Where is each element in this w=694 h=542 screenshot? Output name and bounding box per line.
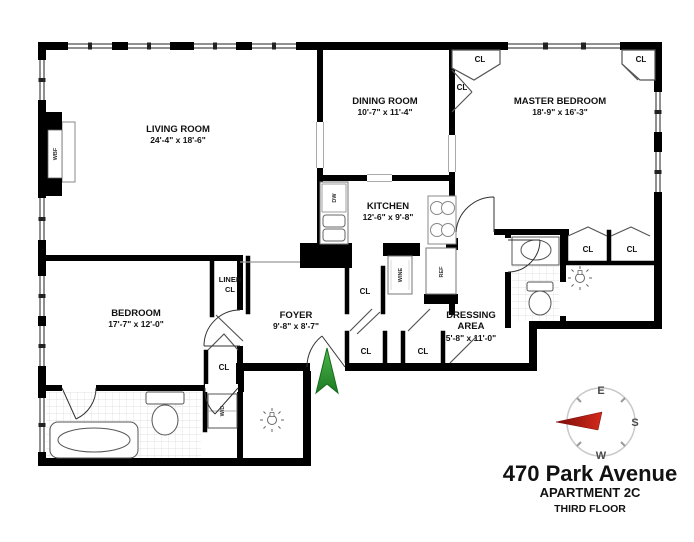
wine-cooler: WINE — [388, 256, 412, 294]
linen-closet-label-2: CL — [225, 285, 235, 294]
window-top-3 — [194, 41, 236, 51]
window-left-2 — [37, 198, 47, 240]
bedroom-label: BEDROOM — [111, 308, 161, 319]
floor-plan-page: WBF W/D — [0, 0, 694, 542]
dressing-area-label-1: DRESSING — [446, 310, 496, 321]
dining-room-dims: 10'-7" x 11'-4" — [357, 107, 412, 117]
fireplace: WBF — [38, 112, 75, 196]
window-right-2 — [653, 152, 663, 192]
closet-label-corridor-1: CL — [361, 347, 372, 356]
master-ceiling-light-icon — [568, 266, 592, 290]
title-block: 470 Park Avenue APARTMENT 2C THIRD FLOOR — [503, 461, 677, 515]
bathroom — [46, 392, 201, 458]
kitchen-label: KITCHEN — [367, 201, 409, 212]
kitchen-dims: 12'-6" x 9'-8" — [363, 212, 414, 222]
closet-label-band-1: CL — [583, 245, 594, 254]
refrigerator-label: REF — [439, 266, 445, 278]
compass-needle — [556, 412, 602, 430]
master-bedroom-label: MASTER BEDROOM — [514, 96, 606, 107]
closet-label-kitchen: CL — [360, 287, 371, 296]
title-address: 470 Park Avenue — [503, 461, 677, 486]
dishwasher-label: DW — [332, 193, 338, 203]
closet-label-corridor-2: CL — [418, 347, 429, 356]
wine-cooler-label: WINE — [398, 267, 404, 282]
closet-label-master-a: CL — [475, 55, 486, 64]
compass-south-label: S — [631, 417, 638, 429]
dressing-area-label-2: AREA — [458, 321, 485, 332]
master-bathroom — [512, 236, 559, 321]
living-room-dims: 24'-4" x 18'-6" — [150, 135, 206, 145]
bathtub — [50, 422, 138, 458]
closet-label-bedroom: CL — [219, 363, 230, 372]
window-top-4 — [252, 41, 296, 51]
title-apartment: APARTMENT 2C — [540, 485, 641, 500]
closet-label-master-b: CL — [457, 83, 468, 92]
window-left-5 — [37, 398, 47, 452]
foyer-label: FOYER — [280, 310, 313, 321]
window-left-3 — [37, 276, 47, 316]
floor-plan-drawing: WBF W/D — [0, 0, 694, 542]
living-room-label: LIVING ROOM — [146, 124, 210, 135]
master-bedroom-door — [456, 197, 494, 232]
stove — [428, 196, 456, 244]
closet-label-master-tr: CL — [636, 55, 647, 64]
window-left-1 — [37, 60, 47, 100]
dishwasher: DW — [322, 184, 346, 212]
master-bedroom-dims: 18'-9" x 16'-3" — [532, 107, 588, 117]
master-toilet — [527, 282, 553, 315]
title-floor: THIRD FLOOR — [554, 503, 626, 515]
dressing-area-dims: 5'-8" x 11'-0" — [446, 333, 496, 343]
master-sink — [512, 237, 559, 265]
dining-room-label: DINING ROOM — [352, 96, 418, 107]
fireplace-label: WBF — [53, 147, 59, 160]
window-top-1 — [68, 41, 112, 51]
ceiling-light-icon — [260, 408, 284, 432]
foyer-dims: 9'-8" x 8'-7" — [273, 321, 319, 331]
compass-east-label: E — [597, 385, 604, 397]
window-left-4 — [37, 326, 47, 366]
bedroom-door — [204, 310, 240, 346]
refrigerator: REF — [426, 248, 456, 294]
window-top-2 — [128, 41, 170, 51]
closet-label-band-2: CL — [627, 245, 638, 254]
linen-closet-label-1: LINEN — [219, 275, 242, 284]
window-right-1 — [653, 92, 663, 132]
compass-rose: E S W — [556, 385, 639, 462]
window-master-top — [508, 41, 620, 51]
bedroom-dims: 17'-7" x 12'-0" — [108, 319, 164, 329]
